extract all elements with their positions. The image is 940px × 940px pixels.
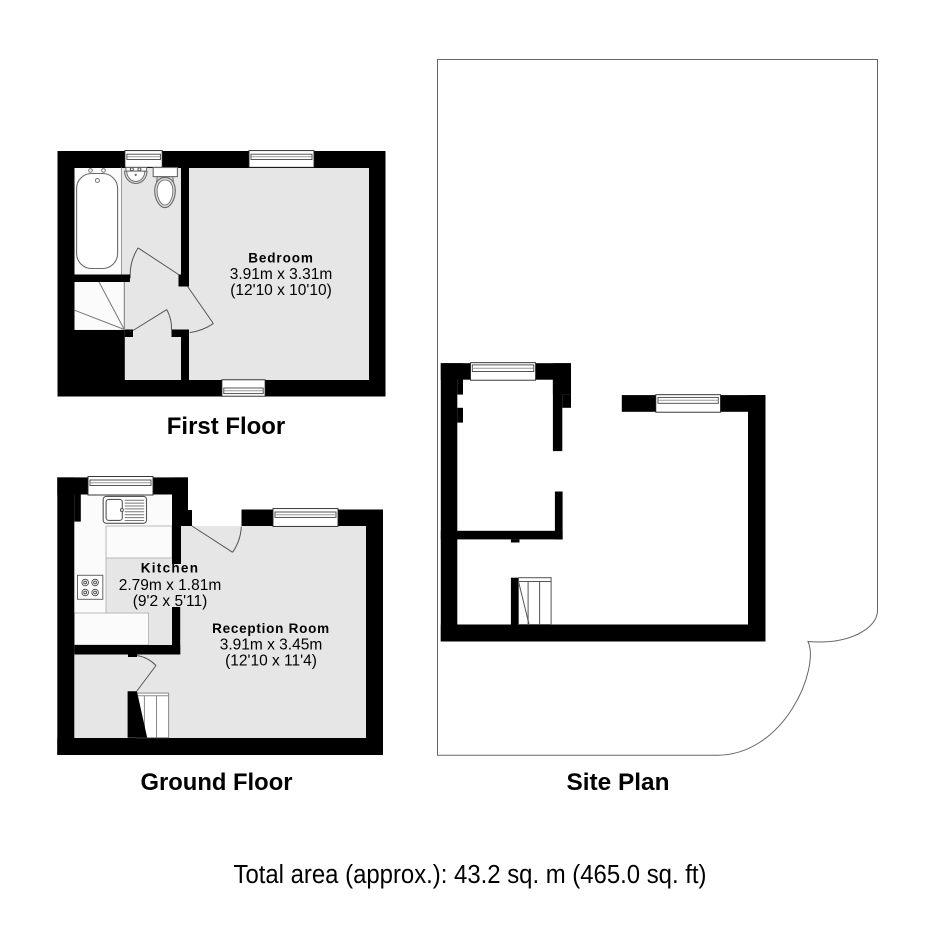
svg-text:Kitchen: Kitchen (141, 561, 200, 576)
svg-text:Total area (approx.): 43.2 sq.: Total area (approx.): 43.2 sq. m (465.0 … (234, 861, 707, 889)
svg-text:Reception Room: Reception Room (212, 621, 330, 636)
svg-text:Bedroom: Bedroom (248, 251, 314, 266)
svg-text:Site Plan: Site Plan (567, 769, 670, 796)
svg-text:(9'2 x 5'11): (9'2 x 5'11) (133, 593, 208, 610)
svg-text:Ground Floor: Ground Floor (141, 769, 293, 796)
svg-text:3.91m x 3.45m: 3.91m x 3.45m (220, 637, 323, 654)
svg-text:First Floor: First Floor (167, 413, 285, 440)
svg-text:2.79m x 1.81m: 2.79m x 1.81m (119, 577, 222, 594)
svg-text:(12'10 x 10'10): (12'10 x 10'10) (230, 282, 332, 299)
svg-text:3.91m x 3.31m: 3.91m x 3.31m (230, 266, 333, 283)
svg-text:(12'10 x 11'4): (12'10 x 11'4) (225, 653, 317, 670)
